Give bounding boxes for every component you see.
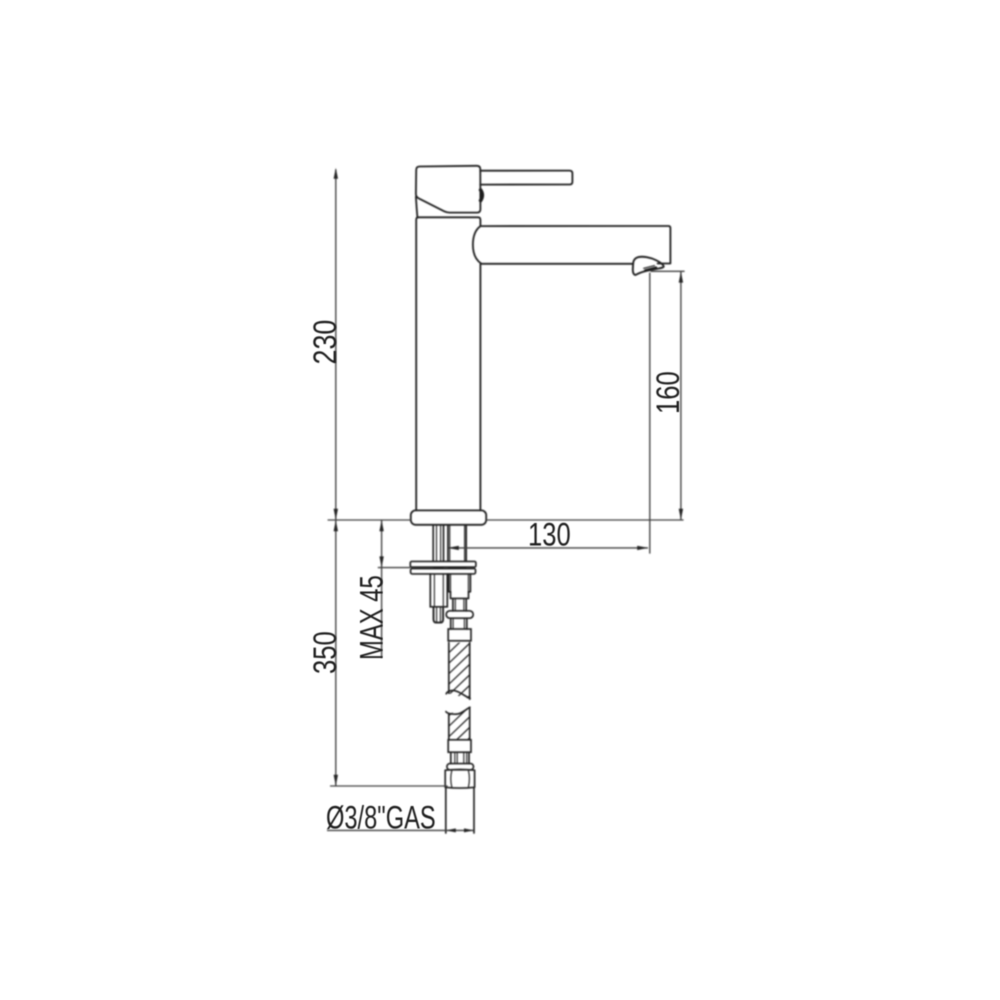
svg-text:350: 350 (308, 631, 343, 674)
svg-text:230: 230 (308, 320, 344, 365)
svg-text:160: 160 (651, 371, 686, 414)
svg-text:MAX 45: MAX 45 (353, 575, 389, 660)
svg-text:130: 130 (528, 518, 571, 553)
svg-text:Ø3/8"GAS: Ø3/8"GAS (326, 800, 436, 835)
